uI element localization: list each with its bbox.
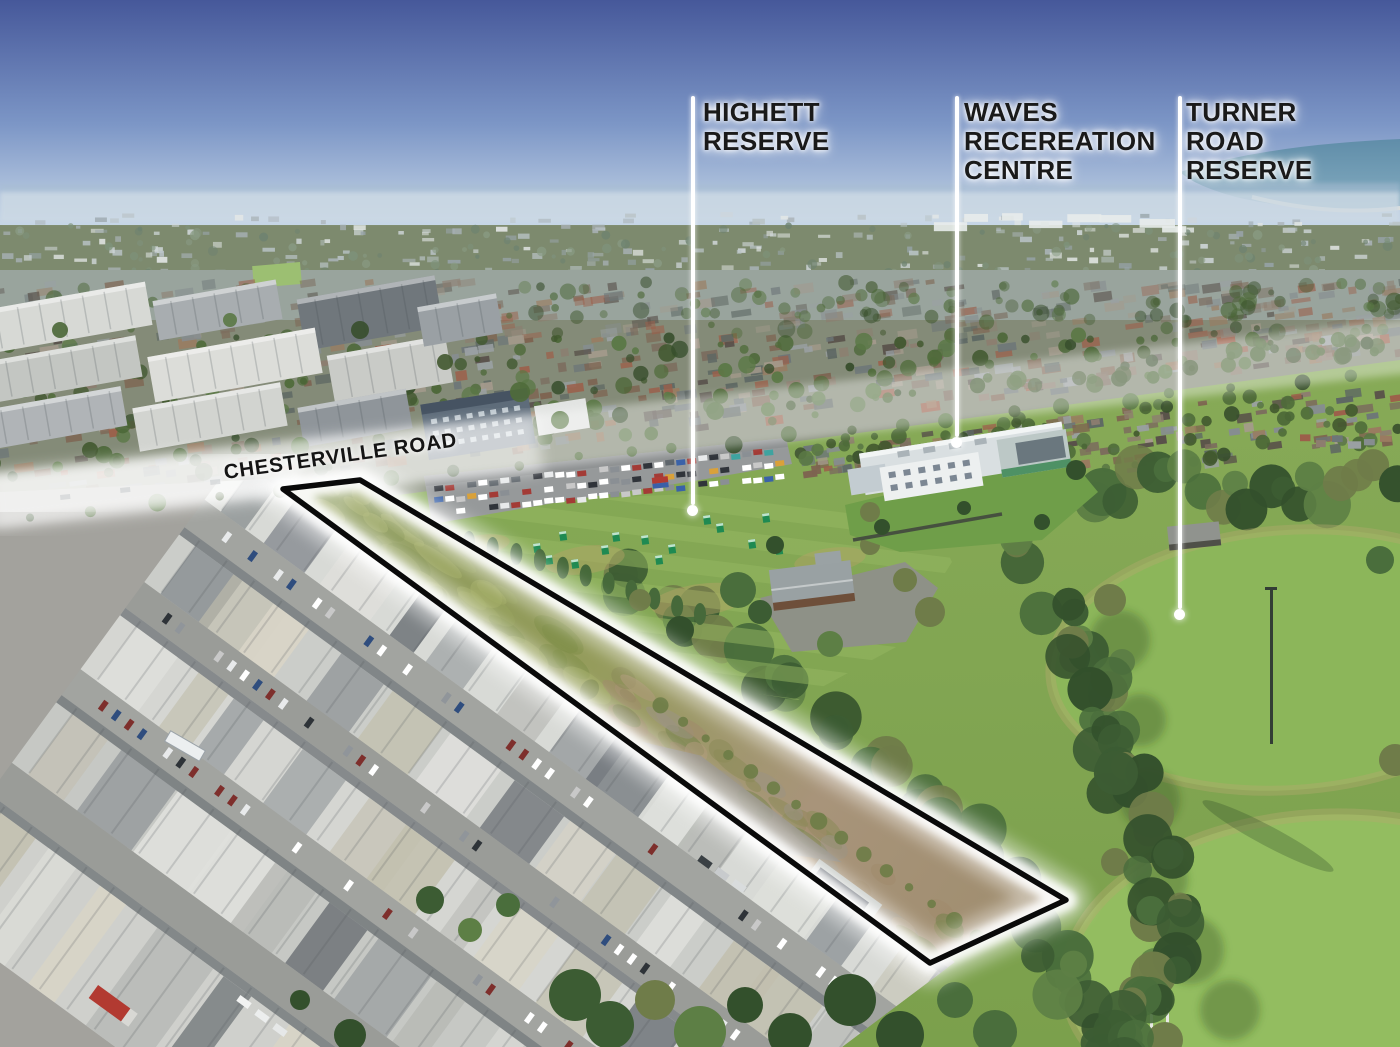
callout-dot-highett-reserve bbox=[687, 505, 698, 516]
label-line: WAVES bbox=[964, 98, 1156, 127]
label-line: RESERVE bbox=[1186, 156, 1313, 185]
label-turner-road-reserve: TURNER ROAD RESERVE bbox=[1186, 98, 1313, 185]
callout-dot-turner-road-reserve bbox=[1174, 609, 1185, 620]
callout-dot-waves-centre bbox=[951, 437, 962, 448]
callout-line-waves-centre bbox=[955, 96, 959, 437]
label-line: CENTRE bbox=[964, 156, 1156, 185]
aerial-site-map: HIGHETT RESERVE WAVES RECEREATION CENTRE… bbox=[0, 0, 1400, 1047]
label-line: HIGHETT bbox=[703, 98, 830, 127]
label-line: ROAD bbox=[1186, 127, 1313, 156]
label-line: RESERVE bbox=[703, 127, 830, 156]
callout-line-turner-road-reserve bbox=[1178, 96, 1182, 609]
callout-line-highett-reserve bbox=[691, 96, 695, 505]
label-line: RECEREATION bbox=[964, 127, 1156, 156]
label-highett-reserve: HIGHETT RESERVE bbox=[703, 98, 830, 156]
label-waves-recreation-centre: WAVES RECEREATION CENTRE bbox=[964, 98, 1156, 185]
label-line: TURNER bbox=[1186, 98, 1313, 127]
